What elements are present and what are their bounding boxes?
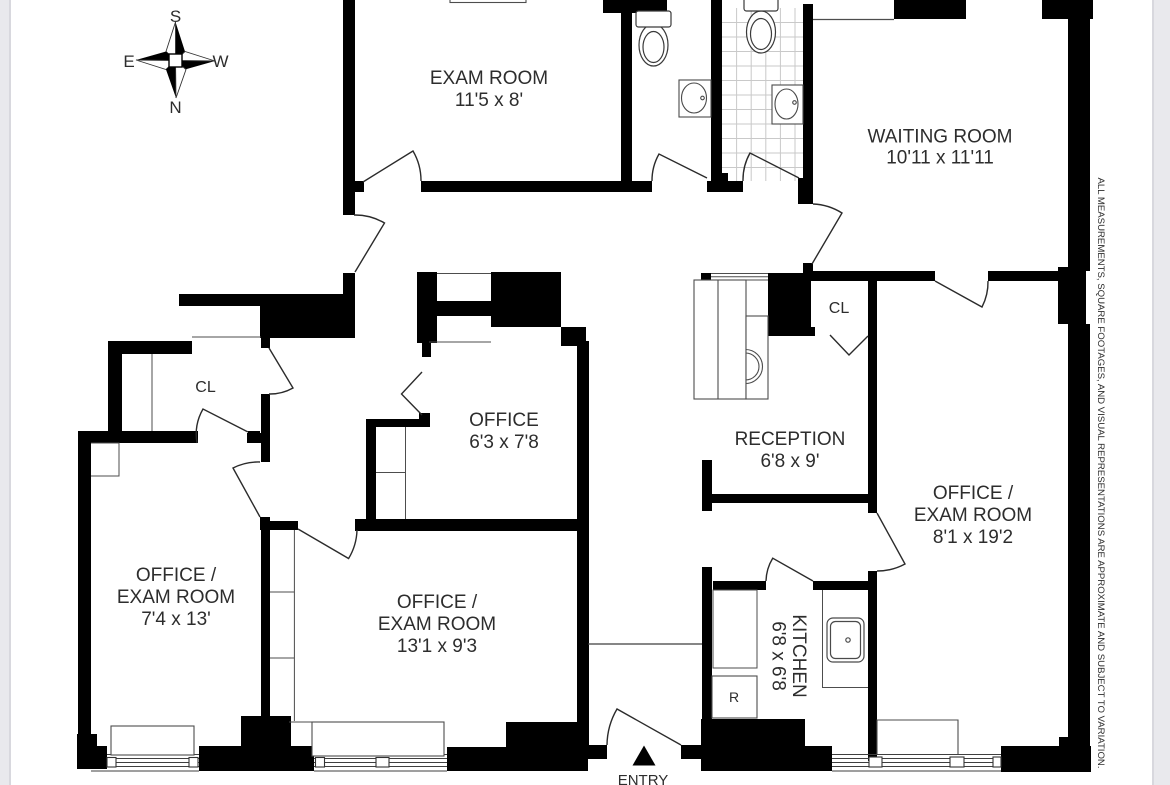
svg-text:6'8 x 6'8: 6'8 x 6'8 — [768, 621, 789, 691]
svg-text:EXAM ROOM: EXAM ROOM — [378, 614, 496, 635]
svg-text:EXAM ROOM: EXAM ROOM — [430, 68, 548, 89]
svg-text:8'1 x 19'2: 8'1 x 19'2 — [933, 527, 1013, 548]
svg-text:ALL MEASUREMENTS, SQUARE FOOTA: ALL MEASUREMENTS, SQUARE FOOTAGES, AND V… — [1095, 178, 1106, 769]
svg-text:W: W — [212, 52, 228, 71]
svg-text:7'4 x 13': 7'4 x 13' — [141, 609, 211, 630]
svg-text:10'11 x 11'11: 10'11 x 11'11 — [886, 148, 994, 169]
svg-text:N: N — [169, 98, 181, 117]
svg-text:ENTRY: ENTRY — [618, 772, 669, 785]
svg-text:S: S — [170, 7, 181, 26]
svg-text:KITCHEN: KITCHEN — [788, 614, 809, 697]
svg-text:EXAM ROOM: EXAM ROOM — [117, 587, 235, 608]
svg-text:11'5 x 8': 11'5 x 8' — [455, 90, 523, 111]
svg-text:CL: CL — [195, 379, 216, 396]
svg-text:OFFICE /: OFFICE / — [933, 483, 1014, 504]
svg-text:6'8 x 9': 6'8 x 9' — [760, 451, 819, 472]
svg-text:OFFICE /: OFFICE / — [397, 592, 478, 613]
svg-text:E: E — [123, 52, 134, 71]
svg-text:EXAM ROOM: EXAM ROOM — [914, 505, 1032, 526]
svg-text:RECEPTION: RECEPTION — [735, 429, 846, 450]
svg-text:OFFICE /: OFFICE / — [136, 565, 217, 586]
svg-text:6'3 x 7'8: 6'3 x 7'8 — [469, 432, 539, 453]
svg-text:R: R — [729, 689, 739, 705]
svg-text:13'1 x 9'3: 13'1 x 9'3 — [397, 636, 477, 657]
svg-text:CL: CL — [829, 300, 850, 317]
svg-text:WAITING ROOM: WAITING ROOM — [868, 127, 1013, 148]
svg-text:OFFICE: OFFICE — [469, 410, 539, 431]
